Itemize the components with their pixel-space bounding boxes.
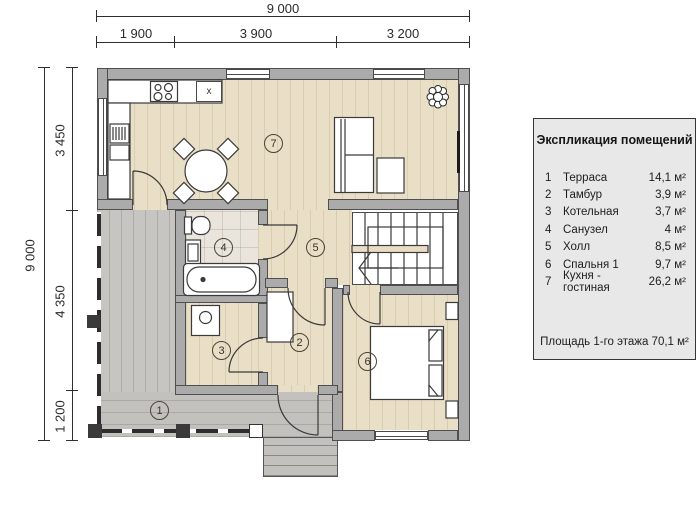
dim-tick (469, 10, 470, 22)
room-label-terrace: 1 (150, 401, 169, 420)
room-label-hall: 5 (306, 238, 325, 257)
dim-tick (66, 210, 78, 211)
dim-label-segment: 3 900 (231, 26, 281, 41)
schedule-row: 7Кухня - гостиная26,2 м² (545, 273, 686, 290)
room-label-vestibule: 2 (290, 333, 309, 352)
wall-segment (325, 278, 338, 288)
dim-label-segment: 1 200 (53, 395, 68, 439)
schedule-row: 5Холл8,5 м² (545, 239, 686, 256)
dim-label-segment: 3 200 (378, 26, 428, 41)
window-top-1 (226, 69, 270, 79)
wall-segment (175, 385, 278, 395)
window-right (459, 84, 469, 192)
dim-label-total: 9 000 (258, 1, 308, 16)
room-schedule-title: Экспликация помещений (534, 133, 695, 147)
wall-segment (258, 303, 268, 338)
room-label-bathroom: 4 (214, 238, 233, 257)
dim-label-segment: 3 450 (53, 119, 68, 163)
window-left (98, 98, 107, 176)
dim-label-segment: 4 350 (53, 280, 68, 324)
total-area-label: Площадь 1-го этажа 70,1 м² (534, 336, 695, 348)
window-casement-mark (457, 131, 460, 173)
window-bedroom (375, 431, 428, 440)
dim-tick (66, 440, 78, 441)
room-schedule: Экспликация помещений 1Терраса14,1 м² 2Т… (533, 118, 696, 360)
dim-tick (38, 440, 50, 441)
room-label-boiler: 3 (212, 341, 231, 360)
schedule-row: 2Тамбур3,9 м² (545, 186, 686, 203)
dim-line (97, 16, 470, 17)
dim-line (97, 42, 470, 43)
kitchen-sink-cabinet: x (196, 81, 222, 102)
terrace-post (176, 424, 190, 438)
wall-hall-bedroom (380, 285, 458, 295)
floor-kitchen-living (108, 80, 458, 210)
wall-segment (332, 392, 343, 432)
room-schedule-rows: 1Терраса14,1 м² 2Тамбур3,9 м² 3Котельная… (545, 169, 686, 291)
room-label-kitchen: 7 (264, 134, 283, 153)
dim-tick (66, 390, 78, 391)
room-label-bedroom: 6 (358, 352, 377, 371)
wall-vestibule-bedroom (332, 288, 343, 392)
dim-tick (336, 36, 337, 48)
dim-tick (174, 36, 175, 48)
window-top-2 (373, 69, 425, 79)
dim-tick (66, 67, 78, 68)
floor-plan-page: 9 000 1 900 3 900 3 200 9 000 3 450 4 35… (0, 0, 700, 508)
schedule-row: 1Терраса14,1 м² (545, 169, 686, 186)
staircase-area (352, 212, 458, 285)
dim-label-total: 9 000 (23, 234, 38, 278)
wall-segment (343, 285, 350, 295)
entrance-steps (263, 437, 338, 477)
dim-tick (469, 36, 470, 48)
wall-segment (265, 278, 288, 288)
floor-vestibule (258, 278, 332, 385)
schedule-row: 4Санузел4 м² (545, 221, 686, 238)
dim-tick (96, 10, 97, 22)
dim-line (72, 68, 73, 441)
schedule-row: 3Котельная3,7 м² (545, 204, 686, 221)
wall-bedroom-bottom (428, 430, 458, 441)
wall-bath-boiler (175, 295, 268, 303)
wall-segment (318, 385, 338, 395)
wall-segment (258, 210, 268, 225)
wall-segment (328, 199, 458, 210)
terrace-post (87, 315, 100, 328)
terrace-post (88, 424, 102, 438)
dim-line (44, 68, 45, 441)
wall-bedroom-bottom (332, 430, 375, 441)
wall-segment (167, 199, 268, 210)
wall-segment (97, 199, 133, 210)
dim-tick (38, 67, 50, 68)
terrace-post-corner (249, 424, 263, 438)
dim-tick (96, 36, 97, 48)
dim-label-segment: 1 900 (111, 26, 161, 41)
floor-hall (258, 210, 352, 285)
